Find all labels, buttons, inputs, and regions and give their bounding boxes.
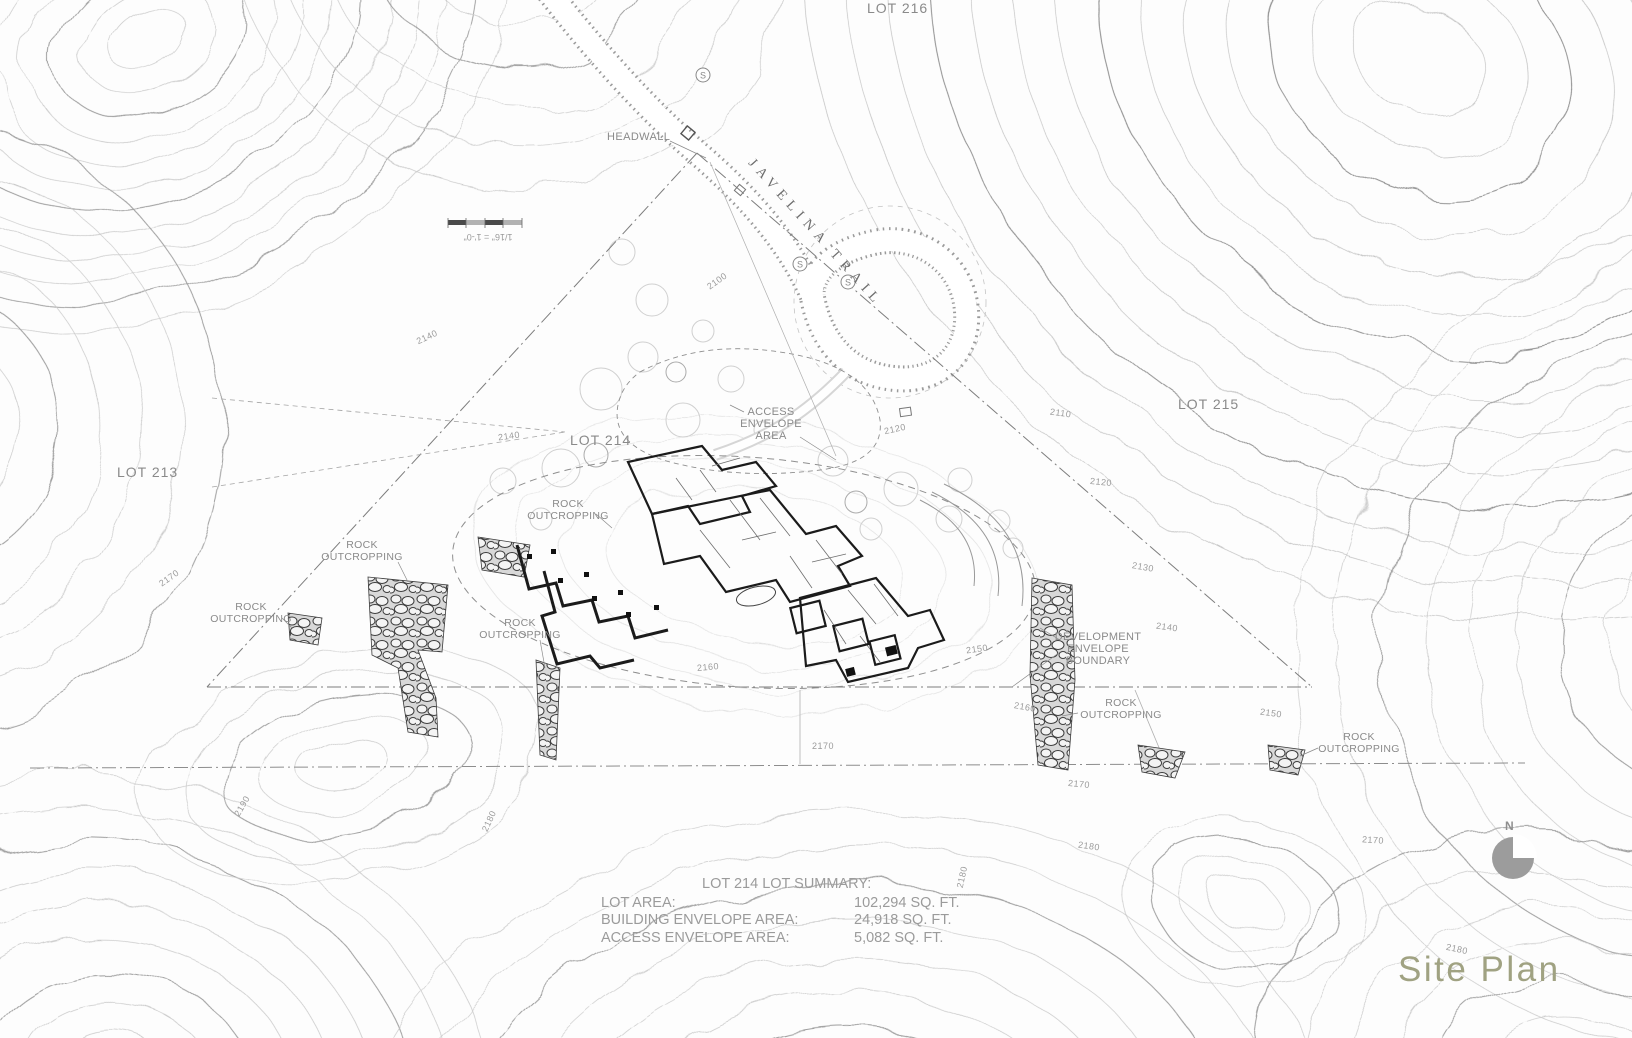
summary-row-label: BUILDING ENVELOPE AREA: [580,912,854,930]
contour-hill [121,612,569,918]
lot-summary-table: LOT 214 LOT SUMMARY: LOT AREA: 102,294 S… [580,876,960,947]
contour-hill [0,79,269,780]
road-javelina-trail [549,0,986,455]
table-row: ACCESS ENVELOPE AREA: 5,082 SQ. FT. [580,930,960,948]
lot-214-label: LOT 214 [570,432,631,448]
rock-outcropping-label: ROCKOUTCROPPING [513,499,623,522]
table-row: LOT AREA: 102,294 SQ. FT. [580,895,960,913]
contour-hill [1108,804,1382,1007]
table-row: BUILDING ENVELOPE AREA: 24,918 SQ. FT. [580,912,960,930]
site-plan-sheet: S S S LOT 216 LOT 215 LOT 213 LOT 214 JA… [0,0,1632,1038]
contour-hill [1199,134,1632,1038]
rock-outcropping-label: ROCKOUTCROPPING [307,540,417,563]
rock-outcropping-label: ROCKOUTCROPPING [1304,732,1414,755]
access-envelope-label: ACCESS ENVELOPE AREA [716,406,826,442]
north-label: N [1505,819,1514,833]
contour-hill [1180,744,1632,1038]
terrace-arcs [920,484,1023,606]
rock-outcropping-label: ROCKOUTCROPPING [465,618,575,641]
leader-lines [282,141,1318,756]
contour-label: 2160 [697,661,720,673]
contour-label: 2170 [1068,778,1091,790]
contour-hill [0,693,566,1038]
sheet-title: Site Plan [1398,950,1561,990]
development-envelope-label: DEVELOPMENT ENVELOPE BOUNDARY [1043,631,1153,667]
lot-216-label: LOT 216 [867,0,928,16]
lot-215-label: LOT 215 [1178,396,1239,412]
headwall-label: HEADWALL [607,131,670,143]
scale-bar [448,218,522,228]
manhole-s-label: S [700,71,706,81]
lot-213-label: LOT 213 [117,464,178,480]
contour-label: 2170 [1362,834,1385,846]
rock-outcropping-label: ROCKOUTCROPPING [196,602,306,625]
north-arrow-icon [1492,834,1537,879]
summary-row-value: 5,082 SQ. FT. [854,930,943,948]
summary-row-value: 102,294 SQ. FT. [854,895,960,913]
contour-label: 2120 [1090,476,1113,488]
rock-outcropping-label: ROCKOUTCROPPING [1066,698,1176,721]
summary-row-label: LOT AREA: [580,895,854,913]
building-envelope-boundary [445,437,1044,707]
contour-label: 2170 [812,741,834,751]
lot-summary-title: LOT 214 LOT SUMMARY: [702,876,960,894]
scale-text: 1/16" = 1'-0" [446,232,530,242]
building-footprint [517,446,1023,682]
svg-text:S: S [797,260,803,270]
summary-row-value: 24,918 SQ. FT. [854,912,952,930]
summary-row-label: ACCESS ENVELOPE AREA: [580,930,854,948]
